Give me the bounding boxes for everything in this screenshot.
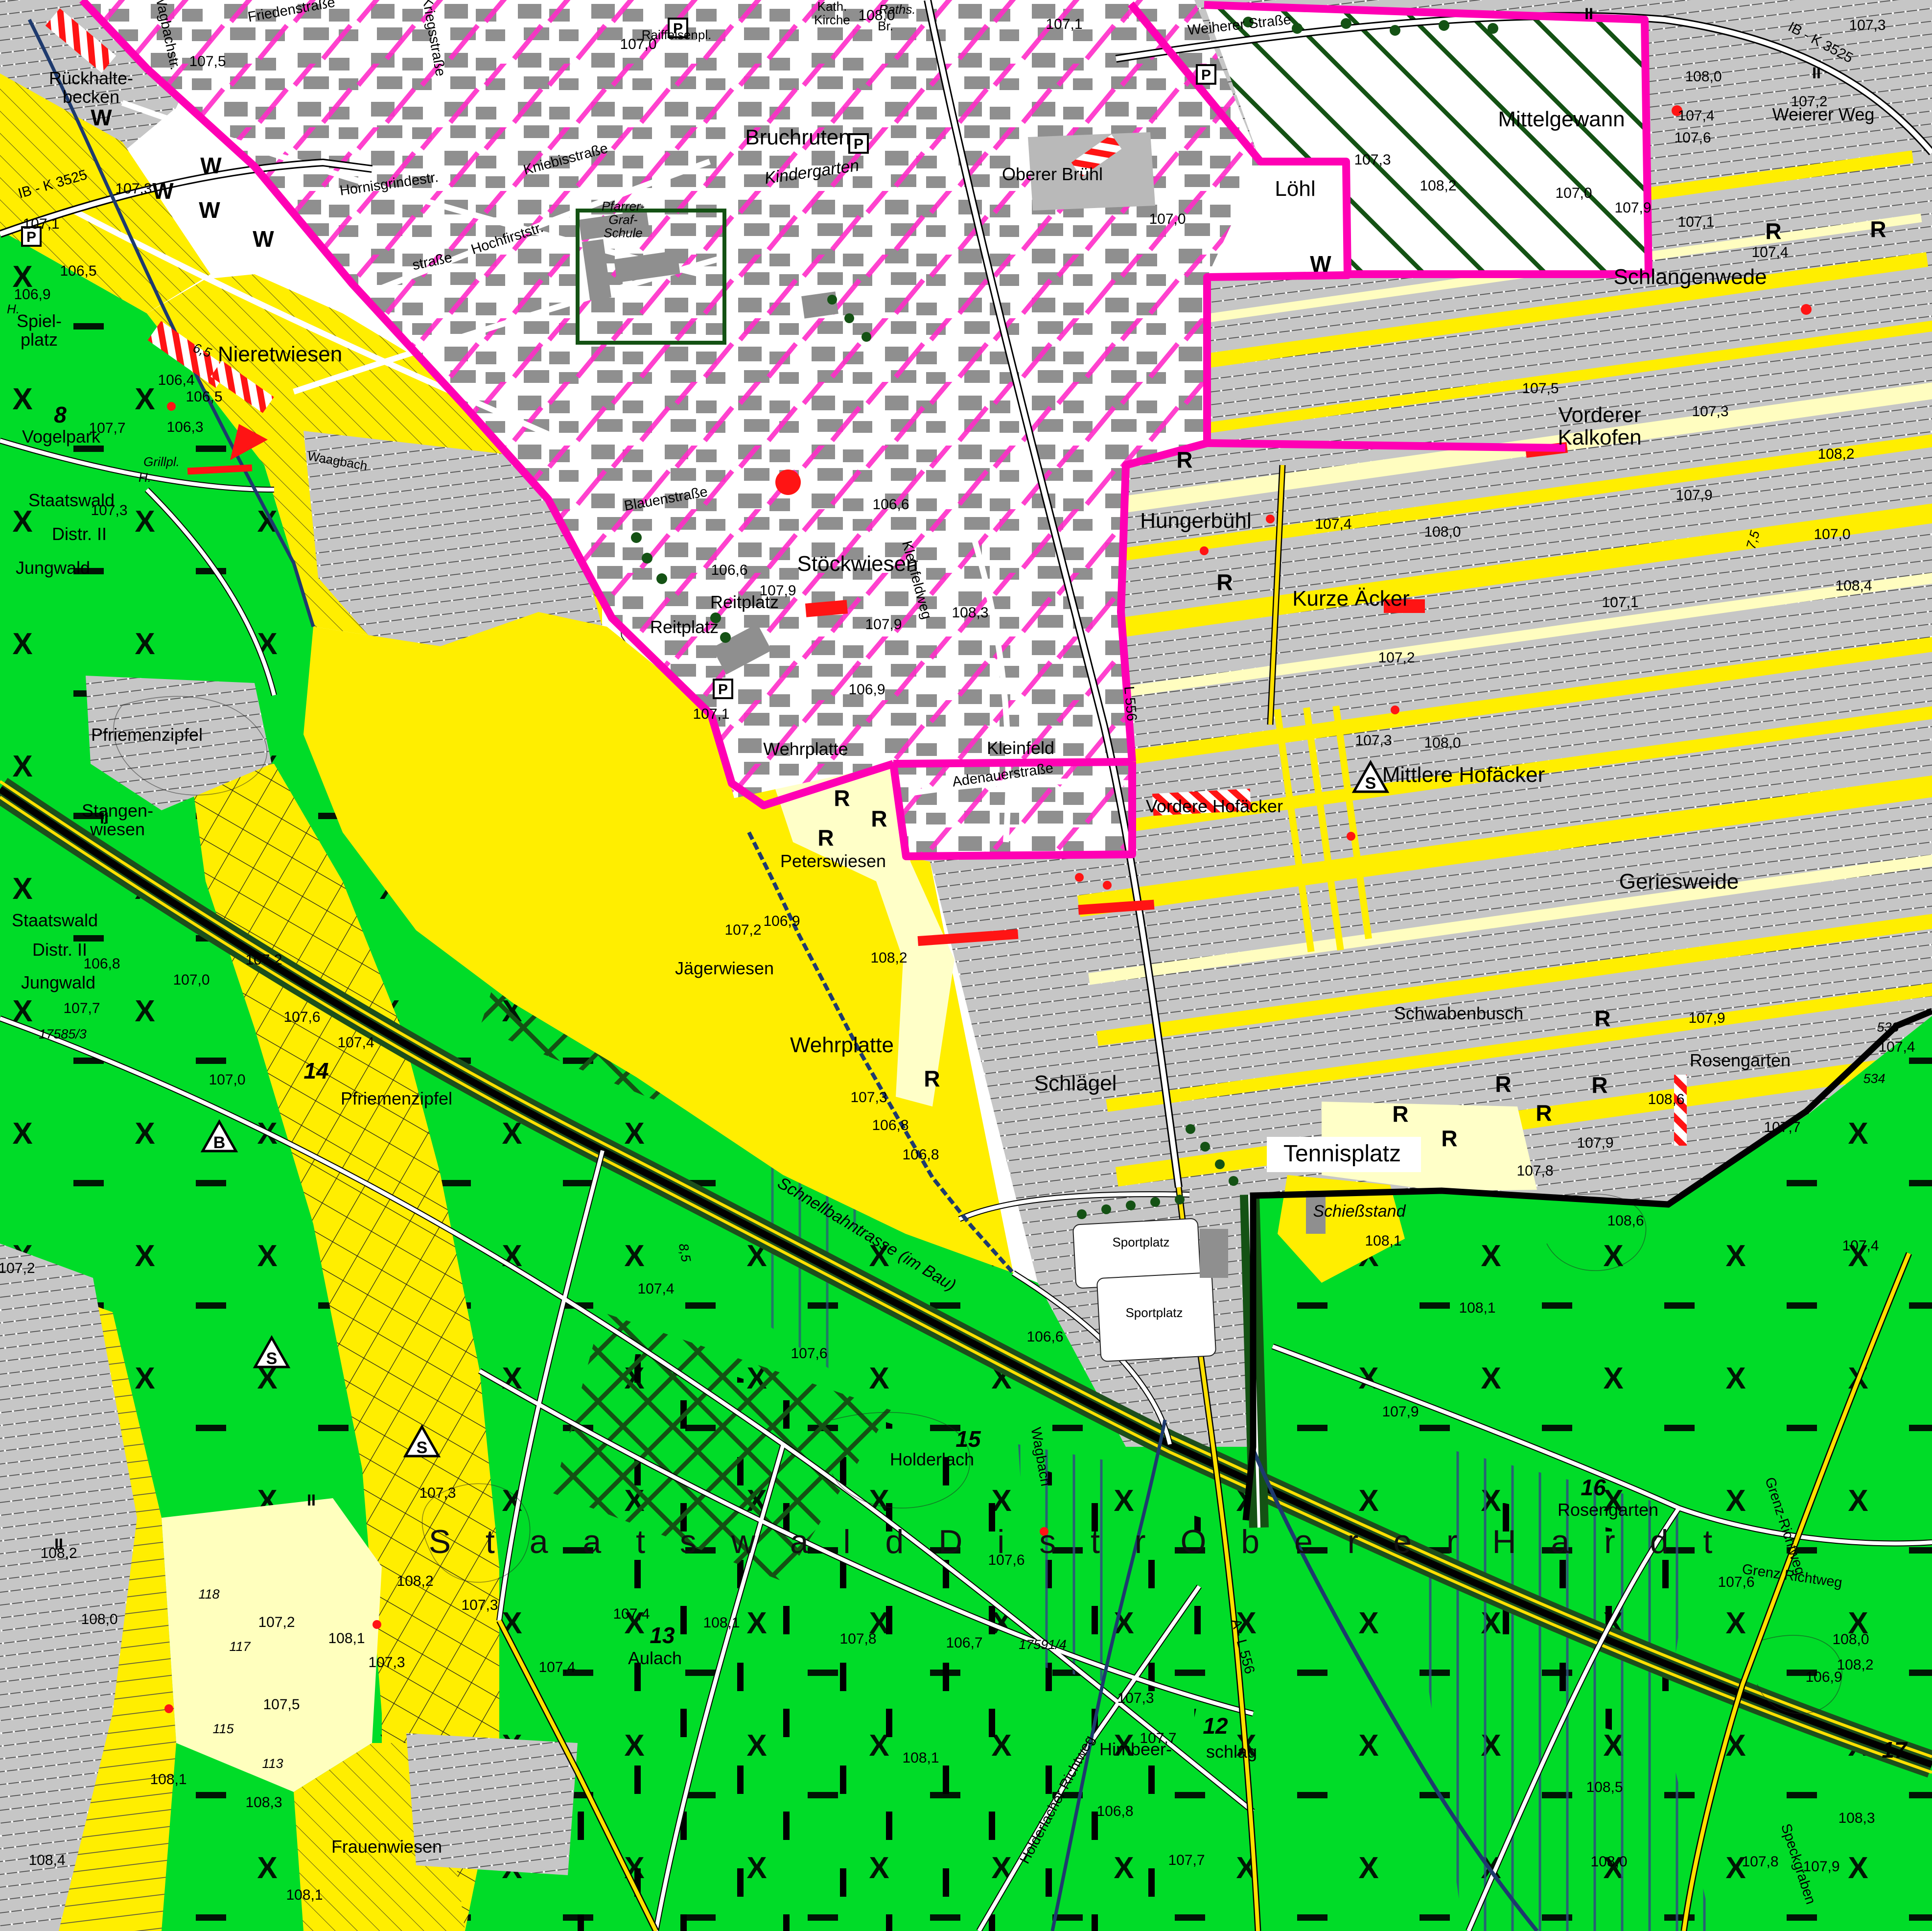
- map-label: W: [200, 153, 222, 178]
- map-label: 108,2: [1817, 446, 1854, 462]
- map-label: 14: [303, 1058, 328, 1083]
- map-label: 107,7: [1140, 1730, 1176, 1746]
- map-label: 108,3: [245, 1794, 282, 1811]
- label-schlangenwede: Schlangenwede: [1613, 265, 1767, 289]
- map-label: 108,6: [1607, 1213, 1644, 1229]
- label-himbeerschlag-b: schlag: [1206, 1742, 1257, 1762]
- map-label: 108,0: [81, 1611, 117, 1627]
- land-use-map: X: [0, 0, 1932, 1931]
- map-label: 106,7: [946, 1635, 982, 1651]
- label-wehrplatte-1: Wehrplatte: [763, 739, 848, 759]
- map-label: 107,1: [1677, 214, 1714, 230]
- map-label: 107,8: [839, 1631, 876, 1647]
- map-label: W: [1310, 251, 1331, 277]
- label-rosengarten-1: Rosengarten: [1690, 1050, 1791, 1070]
- map-label: 108,1: [286, 1887, 323, 1903]
- label-geriesweide: Geriesweide: [1619, 870, 1739, 894]
- map-label: 107,2: [0, 1260, 35, 1276]
- map-label: 107,6: [283, 1009, 320, 1025]
- map-label: 107,3: [115, 181, 152, 197]
- map-label: 117: [229, 1639, 251, 1654]
- label-stoeckwiesen: Stöckwiesen: [797, 552, 918, 576]
- label-frauenwiesen: Frauenwiesen: [331, 1837, 442, 1857]
- map-label: 107,5: [1522, 380, 1559, 397]
- label-vordere-hofaecker: Vordere Hofäcker: [1146, 796, 1283, 816]
- map-label: W: [199, 197, 220, 223]
- map-label: 106,6: [711, 562, 747, 578]
- map-label: 108,2: [396, 1573, 433, 1589]
- map-label: R: [834, 785, 850, 811]
- map-label: 106,8: [902, 1147, 939, 1163]
- map-label: R: [1176, 447, 1192, 472]
- label-distr-ii-1: Distr. II: [52, 524, 107, 544]
- label-jungwald-1: Jungwald: [16, 558, 90, 578]
- map-label: II: [100, 809, 109, 827]
- map-label: 107,0: [620, 36, 656, 52]
- map-label: 106,6: [1026, 1329, 1063, 1345]
- label-pfriemenzipfel-1: Pfriemenzipfel: [91, 725, 203, 745]
- parking-icon: P: [714, 680, 732, 698]
- svg-text:P: P: [1201, 67, 1211, 83]
- map-label: 107,3: [461, 1597, 498, 1613]
- map-label: 107,0: [1814, 526, 1850, 542]
- map-label: 534: [1863, 1071, 1885, 1086]
- label-peterswiesen: Peterswiesen: [780, 851, 886, 871]
- label-bruchruten: Bruchruten: [745, 125, 850, 149]
- label-aulach: Aulach: [628, 1648, 682, 1668]
- map-label: 107,6: [1718, 1574, 1754, 1590]
- map-label: 107,2: [258, 1614, 295, 1630]
- map-label: 107,9: [865, 616, 902, 633]
- map-label: 107,9: [1688, 1010, 1725, 1026]
- map-label: W: [152, 178, 174, 204]
- map-label: 115: [212, 1721, 234, 1736]
- map-label: 107,7: [63, 1000, 100, 1016]
- sporthalle-building: [1200, 1229, 1228, 1278]
- map-label: 107,0: [209, 1072, 245, 1088]
- map-label: 107,9: [1382, 1404, 1419, 1420]
- label-l556: L 556: [1121, 685, 1140, 722]
- map-label: 107,4: [337, 1035, 374, 1051]
- label-tennisplatz: Tennisplatz: [1283, 1141, 1401, 1167]
- map-label: 533: [1877, 1020, 1899, 1035]
- map-label: 107,4: [538, 1659, 575, 1675]
- map-label: 107,7: [1764, 1119, 1800, 1135]
- map-label: 108,0: [1590, 1854, 1627, 1870]
- map-label: 107,7: [1168, 1852, 1205, 1868]
- map-label: 107,4: [637, 1281, 674, 1297]
- map-label: R: [1495, 1071, 1511, 1097]
- map-label: 108,3: [952, 605, 988, 621]
- map-label: 12: [1203, 1713, 1228, 1739]
- map-label: 108,1: [1459, 1300, 1495, 1316]
- label-staatswald-2: Staatswald: [12, 910, 98, 930]
- map-label: 108,0: [1832, 1631, 1869, 1648]
- map-label: 107,3: [850, 1089, 887, 1106]
- svg-text:S: S: [266, 1349, 278, 1368]
- map-label: 17: [1882, 1737, 1908, 1763]
- map-label: 107,8: [1742, 1854, 1778, 1870]
- map-label: 107,5: [263, 1696, 300, 1713]
- map-label: 106,8: [872, 1117, 908, 1133]
- label-nieretwiesen: Nieretwiesen: [218, 342, 342, 366]
- label-staatswald-distr-oberer-hardt: S t a a t s w a l d D i s t r O b e r e …: [429, 1523, 1725, 1560]
- map-label: 107,1: [1046, 16, 1082, 32]
- map-label: 16: [1581, 1475, 1606, 1500]
- map-label: 108,3: [1838, 1810, 1875, 1826]
- label-sportplatz-1: Sportplatz: [1112, 1235, 1169, 1249]
- label-holderlach: Holderlach: [890, 1449, 974, 1469]
- map-label: 107,8: [1516, 1163, 1553, 1179]
- label-wehrplatte-2: Wehrplatte: [790, 1033, 894, 1057]
- map-label: 108,2: [1420, 178, 1456, 194]
- map-label: 106,9: [14, 286, 50, 303]
- map-label: 17585/3: [39, 1027, 87, 1041]
- label-mittlere-hofaecker: Mittlere Hofäcker: [1382, 763, 1545, 787]
- label-schlaegel: Schlägel: [1034, 1071, 1117, 1095]
- map-label: 108,0: [1424, 735, 1461, 751]
- label-oberer-bruehl: Oberer Brühl: [1002, 164, 1103, 184]
- label-schiessstand: Schießstand: [1313, 1202, 1406, 1221]
- label-mittelgewann: Mittelgewann: [1498, 107, 1625, 131]
- map-label: II: [1812, 64, 1821, 82]
- map-label: R: [1536, 1100, 1552, 1126]
- map-label: 107,0: [1149, 211, 1186, 227]
- map-label: 106,8: [1096, 1803, 1133, 1819]
- map-label: 106,5: [186, 389, 222, 405]
- map-label: 106,3: [166, 419, 203, 435]
- map-label: 107,2: [1378, 650, 1415, 666]
- map-label: 108,2: [870, 950, 907, 966]
- map-label: 107,1: [693, 706, 729, 722]
- map-label: R: [1441, 1126, 1457, 1151]
- label-kath-kirche: Kath.Kirche: [814, 0, 850, 27]
- map-label: 107,1: [23, 216, 59, 232]
- map-label: 107,0: [173, 972, 209, 988]
- map-label: 107,3: [419, 1485, 456, 1501]
- map-label: II: [307, 1491, 316, 1509]
- map-label: 107,2: [1791, 94, 1827, 110]
- label-spielplatz: Spiel-platz: [17, 311, 62, 350]
- label-sportplatz-2: Sportplatz: [1125, 1305, 1183, 1320]
- map-label: 107,3: [1117, 1690, 1154, 1706]
- map-label: 17591/4: [1019, 1637, 1067, 1652]
- label-jungwald-2: Jungwald: [21, 972, 95, 992]
- map-label: H.: [139, 470, 151, 485]
- map-label: R: [1216, 569, 1233, 595]
- map-label: 107,6: [988, 1552, 1024, 1568]
- label-hungerbuehl: Hungerbühl: [1140, 509, 1252, 533]
- parking-icon: P: [1197, 65, 1215, 84]
- label-jaegerwiesen: Jägerwiesen: [675, 958, 774, 978]
- map-label: 107,1: [1602, 594, 1638, 611]
- svg-text:P: P: [718, 682, 728, 698]
- map-label: 107,0: [1555, 185, 1592, 201]
- map-label: 106,8: [83, 956, 120, 972]
- map-label: 113: [262, 1756, 283, 1771]
- map-label: 108,1: [1365, 1233, 1401, 1249]
- label-reitplatz-2: Reitplatz: [650, 617, 719, 637]
- map-label: 108,1: [703, 1615, 740, 1631]
- map-label: 108,6: [1648, 1091, 1684, 1107]
- map-label: R: [871, 806, 887, 831]
- map-label: 118: [198, 1587, 219, 1601]
- map-label: 108,5: [1586, 1779, 1623, 1795]
- label-stangenwiesen: Stangen-wiesen: [82, 801, 153, 839]
- map-label: 107,2: [724, 922, 761, 938]
- map-label: 107,4: [1315, 516, 1351, 532]
- map-label: II: [54, 1535, 63, 1553]
- map-label: 107,3: [91, 502, 127, 518]
- map-label: 107,9: [1676, 487, 1712, 503]
- map-label: 108,1: [328, 1630, 365, 1647]
- parking-icon: P: [849, 134, 868, 153]
- map-label: 107,6: [791, 1345, 827, 1362]
- map-label: 108,4: [28, 1852, 65, 1868]
- map-label: W: [91, 105, 112, 130]
- map-canvas: X: [0, 0, 1932, 1931]
- map-label: 107,7: [89, 420, 125, 436]
- map-label: 107,2: [245, 952, 282, 968]
- label-pfriemenzipfel-2: Pfriemenzipfel: [341, 1088, 452, 1108]
- map-label: 108,1: [902, 1750, 939, 1766]
- map-label: 13: [650, 1623, 675, 1648]
- label-rosengarten-2: Rosengarten: [1558, 1500, 1658, 1520]
- map-label: 107,3: [1692, 403, 1728, 420]
- map-label: 107,3: [368, 1654, 405, 1671]
- label-kurze-aecker: Kurze Äcker: [1292, 587, 1410, 611]
- map-label: 108,4: [1835, 578, 1872, 594]
- svg-text:B: B: [213, 1133, 226, 1152]
- map-label: R: [1870, 216, 1886, 242]
- map-label: 107,4: [613, 1606, 650, 1622]
- label-kleinfeld: Kleinfeld: [987, 738, 1054, 758]
- map-label: 108,0: [1685, 69, 1722, 85]
- map-label: 106,6: [872, 496, 909, 513]
- map-label: 107,3: [1354, 152, 1391, 168]
- map-label: 107,9: [1803, 1859, 1839, 1875]
- svg-text:P: P: [854, 136, 863, 152]
- map-label: W: [253, 226, 274, 252]
- map-label: 107,9: [759, 583, 796, 599]
- map-label: 107,3: [1849, 17, 1885, 33]
- map-label: R: [1591, 1072, 1607, 1098]
- label-vorderer-kalkofen: VordererKalkofen: [1558, 403, 1641, 449]
- map-label: R: [817, 825, 834, 850]
- label-grillplatz: Grillpl.: [143, 454, 180, 469]
- map-label: 106,4: [158, 372, 194, 388]
- map-label: 108,2: [1837, 1657, 1873, 1673]
- label-loehl: Löhl: [1275, 177, 1315, 201]
- map-label: II: [1584, 5, 1593, 23]
- map-label: 108,0: [858, 7, 895, 24]
- map-label: 106,5: [60, 263, 96, 279]
- map-label: 107,4: [1842, 1238, 1879, 1254]
- map-label: 107,3: [1355, 732, 1392, 749]
- map-label: R: [1765, 218, 1781, 244]
- map-label: 107,6: [1674, 130, 1711, 146]
- map-label: 8: [54, 402, 67, 427]
- map-label: 107,4: [1751, 244, 1788, 260]
- map-label: 107,9: [1577, 1135, 1613, 1151]
- map-label: 108,0: [1424, 524, 1461, 540]
- svg-text:S: S: [1365, 774, 1376, 793]
- map-label: 107,9: [1614, 200, 1651, 216]
- map-label: 107,4: [1677, 108, 1714, 124]
- map-label: R: [1392, 1101, 1408, 1127]
- map-label: H.: [7, 302, 20, 316]
- label-schwabenbusch: Schwabenbusch: [1394, 1003, 1523, 1023]
- map-label: 107,4: [1878, 1039, 1915, 1055]
- map-label: 107,5: [189, 53, 226, 70]
- map-label: 106,9: [763, 913, 800, 929]
- map-label: 108,1: [150, 1771, 186, 1788]
- map-label: 15: [955, 1426, 981, 1452]
- label-distr-ii-2: Distr. II: [32, 940, 87, 960]
- map-label: R: [924, 1066, 940, 1091]
- map-label: R: [1594, 1006, 1610, 1031]
- map-label: 106,9: [848, 682, 885, 698]
- svg-text:S: S: [417, 1438, 428, 1457]
